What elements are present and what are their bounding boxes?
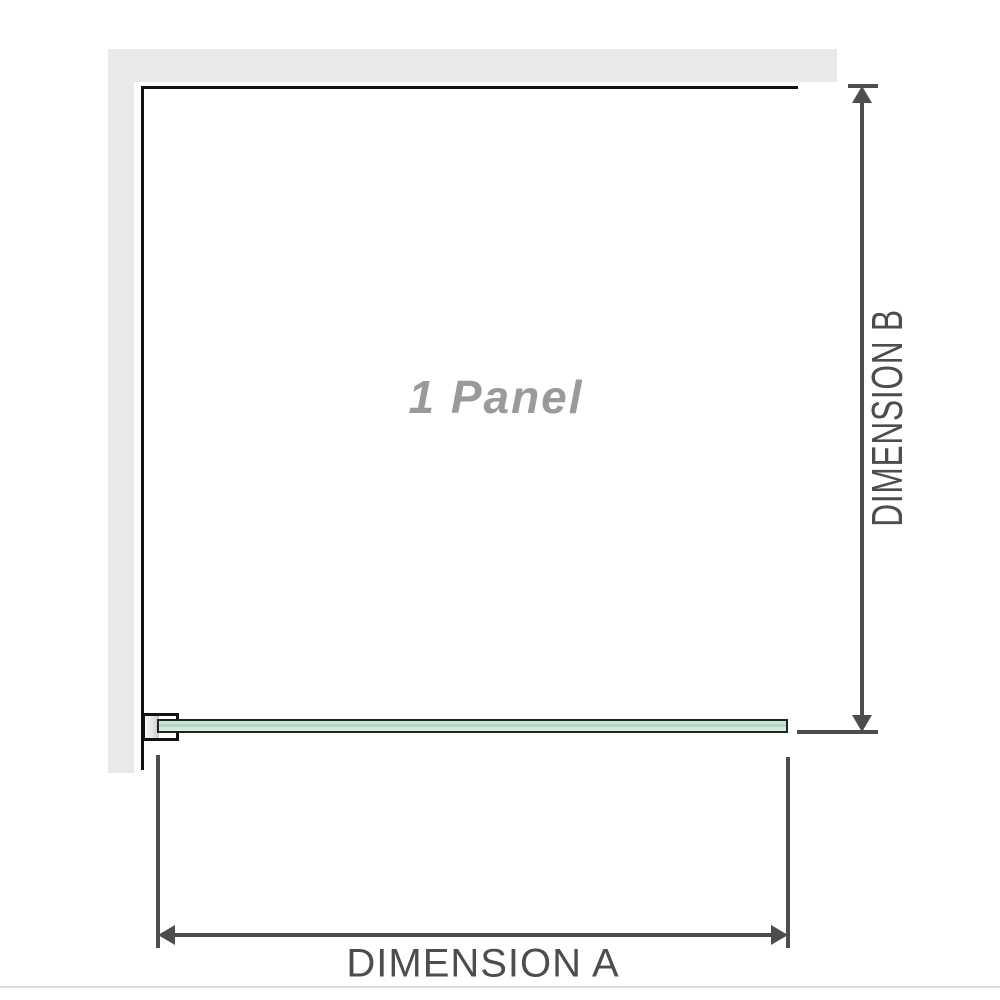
arrow-right-icon <box>771 925 788 945</box>
wall-left <box>108 49 134 773</box>
shower-screen-dimension-diagram: 1 Panel DIMENSION B DIMENSION A <box>0 0 1000 1000</box>
dimension-b-label: DIMENSION B <box>863 309 913 526</box>
panel-left-edge-line <box>141 86 144 770</box>
panel-count-label: 1 Panel <box>408 370 583 424</box>
arrow-left-icon <box>158 925 175 945</box>
panel-top-edge-line <box>143 86 798 89</box>
dimension-a-label: DIMENSION A <box>346 942 619 987</box>
arrow-down-icon <box>852 715 872 732</box>
dimension-a-line <box>162 933 784 937</box>
wall-top <box>108 49 837 82</box>
arrow-up-icon <box>852 86 872 103</box>
glass-panel <box>157 719 788 733</box>
dimension-a-extension-right <box>786 757 790 948</box>
dimension-a-extension-left <box>156 755 160 948</box>
page-separator-line <box>0 986 1000 988</box>
